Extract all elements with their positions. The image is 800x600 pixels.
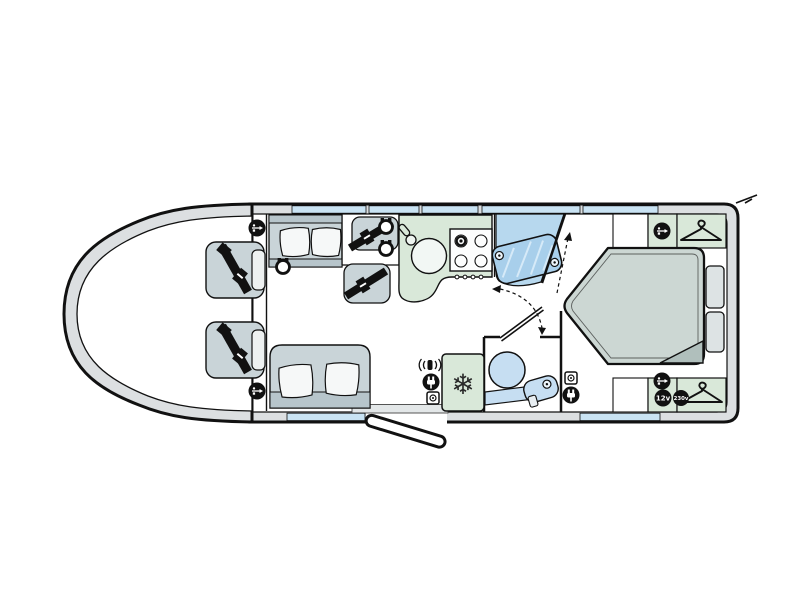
usb-power-icon bbox=[654, 223, 671, 240]
wardrobe-top bbox=[677, 214, 726, 248]
window-top-4 bbox=[482, 206, 580, 213]
pillow bbox=[311, 227, 342, 257]
cab bbox=[64, 204, 267, 422]
pillow bbox=[278, 364, 314, 399]
cab-seat-passenger bbox=[206, 242, 265, 298]
cab-seat-driver bbox=[206, 322, 265, 378]
speaker-icon bbox=[380, 218, 393, 234]
window-top-1 bbox=[292, 206, 366, 213]
socket-230v-label: 230v bbox=[674, 396, 689, 402]
kitchen-hob bbox=[450, 229, 492, 279]
fridge-cabinet: ❄ bbox=[442, 354, 484, 411]
overhead-locker bbox=[613, 214, 648, 248]
usb-power-icon bbox=[249, 220, 266, 237]
mains-socket-icon bbox=[427, 392, 439, 404]
mains-plug-icon bbox=[423, 374, 440, 391]
headboard-cushion bbox=[706, 266, 724, 308]
mains-plug-icon bbox=[563, 387, 580, 404]
speaker-icon bbox=[380, 240, 393, 256]
window-top-5 bbox=[583, 206, 658, 213]
window-top-2 bbox=[369, 206, 419, 213]
floorplan-svg: ❄ bbox=[0, 0, 800, 600]
socket-12v-icon: 12v bbox=[655, 390, 672, 407]
usb-power-icon bbox=[249, 383, 266, 400]
socket-12v-label: 12v bbox=[656, 394, 671, 402]
mains-socket-icon bbox=[565, 372, 577, 384]
usb-power-icon bbox=[654, 373, 671, 390]
headboard-cushion bbox=[706, 312, 724, 352]
rear-aerial bbox=[736, 195, 757, 203]
motorhome-floorplan: ❄ bbox=[0, 0, 800, 600]
window-top-3 bbox=[422, 206, 478, 213]
fridge-snowflake-icon: ❄ bbox=[451, 368, 474, 401]
travel-seat-2 bbox=[344, 264, 390, 303]
basin bbox=[489, 352, 525, 388]
speaker-icon bbox=[277, 258, 290, 274]
lounge-sofa-bottom bbox=[270, 345, 370, 408]
pillow bbox=[279, 227, 310, 257]
window-bottom-2 bbox=[580, 413, 660, 420]
socket-230v-icon: 230v bbox=[673, 390, 689, 406]
window-bottom-1 bbox=[287, 413, 365, 420]
overhead-locker bbox=[613, 378, 648, 412]
pillow bbox=[324, 362, 359, 396]
